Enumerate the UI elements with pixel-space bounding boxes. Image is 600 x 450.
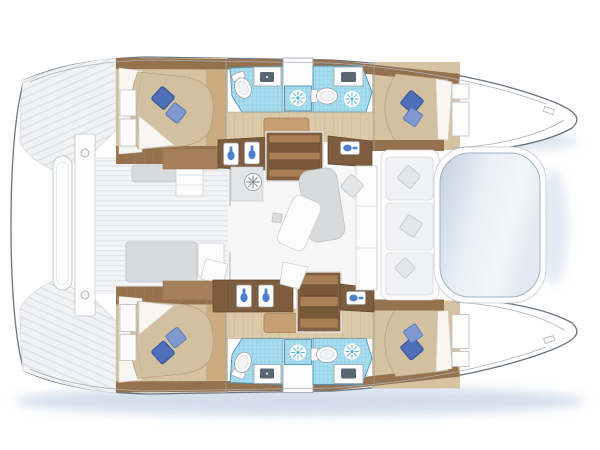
sink-icon: [237, 285, 252, 307]
toilet-icon: [311, 88, 338, 104]
sink-basin: [341, 72, 356, 82]
sink-icon: [341, 142, 360, 155]
faucet-dot: [266, 76, 268, 78]
shower-head-icon: [344, 91, 360, 107]
bed-shelf: [452, 102, 469, 136]
cockpit-storage: [176, 165, 203, 196]
cockpit-sunpad: [126, 242, 197, 282]
floorplan-canvas: [0, 0, 600, 450]
sink-icon: [245, 142, 260, 164]
wheel-icon: [245, 174, 262, 191]
stern-walkway: [75, 134, 95, 316]
forward-head: [311, 66, 372, 112]
bed-shelf: [452, 84, 469, 99]
headboard-shelf: [120, 90, 136, 116]
sink-icon: [347, 292, 366, 305]
headboard-shelf: [120, 119, 136, 146]
cockpit-coaming: [163, 281, 213, 300]
foredeck: [381, 147, 546, 303]
companionway-steps-starboard: [297, 272, 342, 333]
catamaran-floor-plan: [0, 0, 600, 450]
salon-side-table: [272, 213, 282, 223]
sink-icon: [259, 285, 274, 307]
cleat-icon: [81, 149, 89, 157]
cockpit-coaming: [163, 149, 218, 169]
galley-counter-double-sink: [213, 280, 293, 312]
cockpit: [95, 158, 232, 293]
forward-cabin-sole: [372, 140, 444, 151]
cleat-icon: [81, 291, 89, 299]
aft-cabin-bed: [119, 68, 213, 154]
sink-icon: [224, 143, 239, 165]
shower-head-icon: [290, 90, 306, 106]
dinghy-outline: [53, 156, 72, 290]
trampoline: [440, 153, 540, 297]
